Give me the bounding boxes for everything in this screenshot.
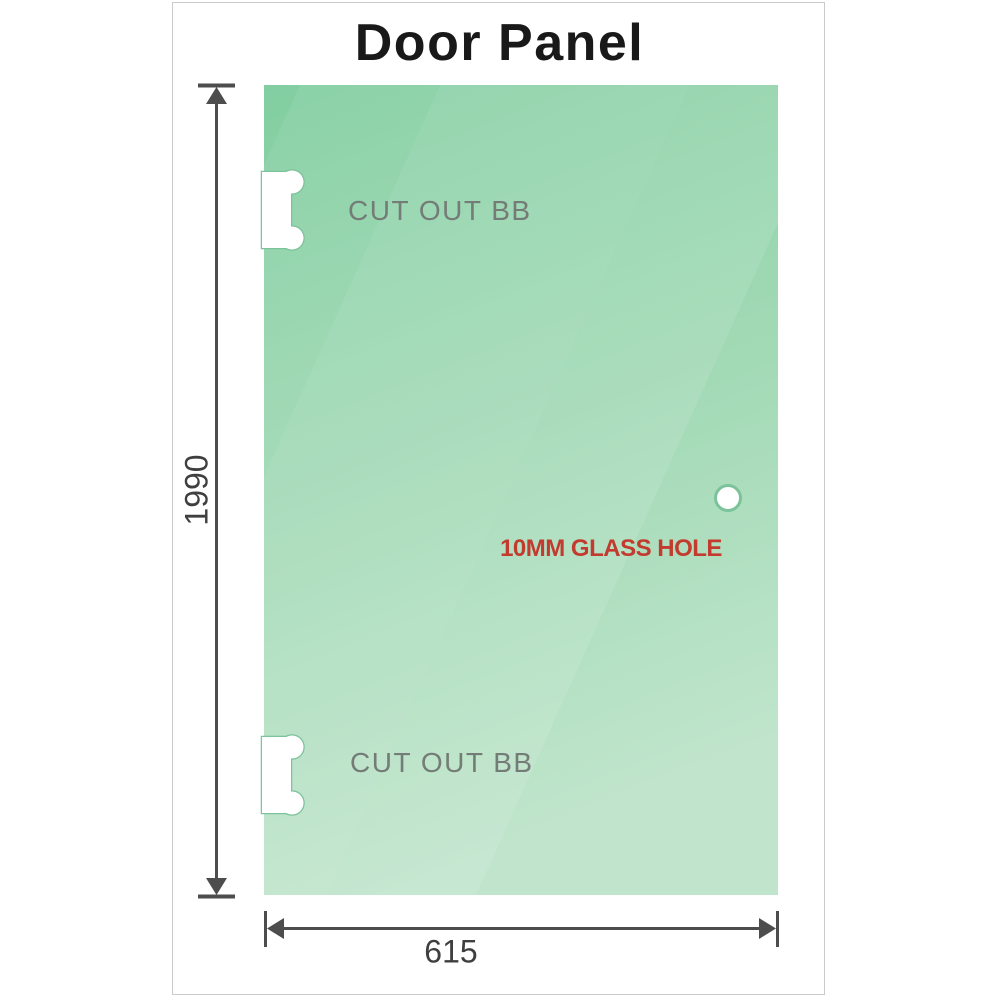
width-dimension-arrow-right (759, 918, 776, 939)
width-dimension-value: 615 (424, 934, 477, 971)
height-dimension-arrow-top (206, 87, 227, 104)
height-dimension-value: 1990 (179, 454, 216, 525)
width-dimension (266, 911, 778, 947)
width-dimension-arrow-left (267, 918, 284, 939)
glass-hole (716, 486, 741, 511)
cutout-top-label: CUT OUT BB (348, 195, 532, 227)
diagram-drawing (0, 0, 1000, 1000)
glass-hole-label: 10MM GLASS HOLE (500, 535, 722, 563)
door-panel-diagram: Door Panel (0, 0, 1000, 1000)
cutout-bottom-label: CUT OUT BB (350, 747, 534, 779)
height-dimension-arrow-bottom (206, 878, 227, 895)
